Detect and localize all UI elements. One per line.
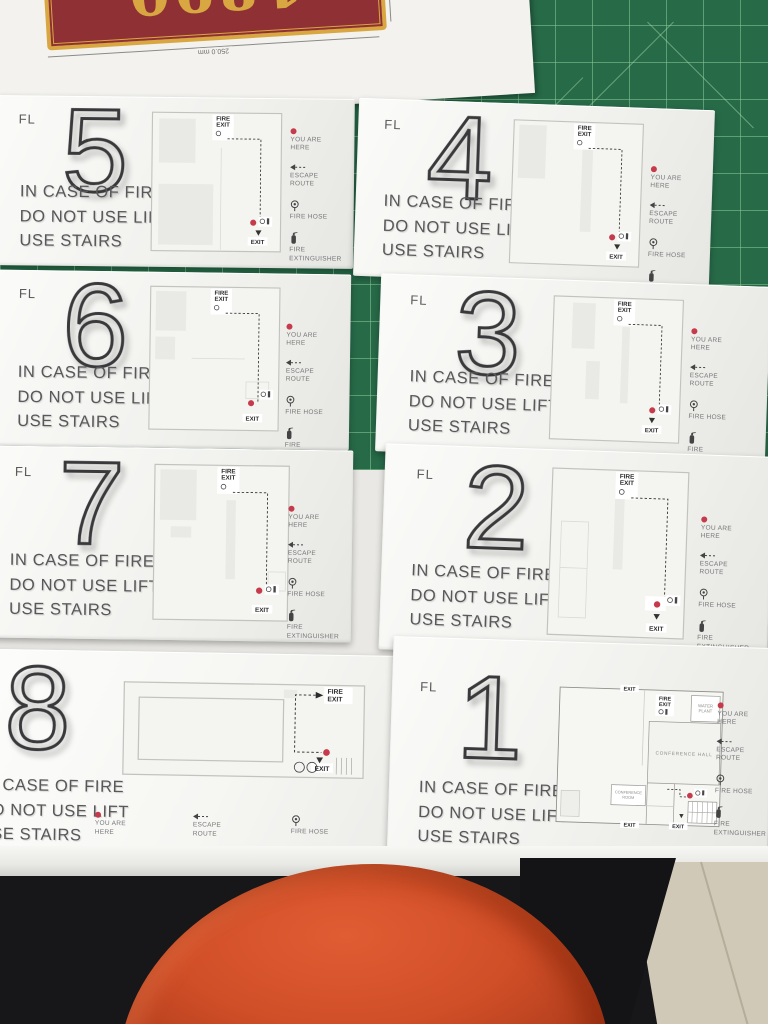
- plan-legend: YOU ARE HERE ESCAPE ROUTE FIRE HOSE FIRE…: [687, 328, 748, 465]
- plaque-number: 1890: [123, 0, 304, 29]
- escape-route-icon: [193, 813, 210, 819]
- plan-legend: YOU ARE HERE ESCAPE ROUTE FIRE HOSE FIRE…: [287, 506, 345, 642]
- exit-label: EXIT: [251, 239, 265, 246]
- exit-label: EXIT: [623, 687, 636, 693]
- you-are-here-icon: [691, 328, 697, 334]
- svg-text:CONFERENCE: CONFERENCE: [615, 790, 643, 795]
- floor-label: FL: [416, 466, 434, 482]
- side-room: [560, 790, 579, 816]
- height-dimension: 100.0 mm: [385, 0, 423, 22]
- floor-label: FL: [384, 117, 402, 133]
- floor-number: 8: [4, 649, 72, 768]
- escape-route-icon: [690, 364, 707, 371]
- floor-sign-8: FL 8 IN CASE OF FIRE DO NOT USE LIFT USE…: [0, 648, 396, 872]
- photo-scene: 1890 250.0 mm 100.0 mm FL 5 IN CASE OF F…: [0, 0, 768, 1024]
- fire-extinguisher-icon: [289, 232, 298, 244]
- fire-hose-icon: [287, 577, 297, 588]
- floor-sign-6: FL 6 IN CASE OF FIRE DO NOT USE LIFT USE…: [0, 270, 351, 451]
- fire-extinguisher-icon: [687, 432, 696, 444]
- exit-label: EXIT: [649, 626, 664, 633]
- fire-extinguisher-icon: [626, 233, 628, 239]
- fire-hose-icon: [290, 200, 300, 211]
- svg-text:EXIT: EXIT: [327, 696, 343, 703]
- fire-hose-icon: [698, 588, 708, 599]
- svg-text:ROOM: ROOM: [622, 796, 634, 800]
- you-are-here-icon: [701, 516, 707, 522]
- svg-text:EXIT: EXIT: [659, 702, 672, 708]
- fire-extinguisher-icon: [647, 270, 656, 282]
- fire-hose-icon: [285, 395, 295, 406]
- floor-label: FL: [19, 111, 36, 126]
- fire-extinguisher-icon: [697, 620, 706, 632]
- fire-extinguisher-icon: [285, 428, 294, 440]
- floor-plan: FIRE EXIT EXIT: [118, 673, 372, 785]
- floor-plan: FIRE EXIT EXIT: [147, 105, 301, 261]
- plan-legend: YOU ARE HERE ESCAPE ROUTE FIRE HOSE FIRE…: [646, 166, 707, 288]
- floor-plan: EXIT FIRE EXIT WATER PLANT CONFERENCE HA…: [545, 647, 738, 867]
- fire-warning-text: IN CASE OF FIRE DO NOT USE LIFT USE STAI…: [409, 558, 561, 637]
- fire-extinguisher-icon: [665, 709, 667, 715]
- fire-hose-icon: [291, 815, 301, 826]
- escape-route-icon: [288, 542, 305, 548]
- you-are-here-icon: [286, 324, 292, 330]
- exit-label: EXIT: [645, 427, 659, 434]
- fire-extinguisher-icon: [666, 406, 668, 412]
- fire-warning-text: IN CASE OF FIRE DO NOT USE LIFT USE STAI…: [407, 364, 559, 443]
- exit-label: EXIT: [255, 607, 269, 614]
- fire-hose-icon: [648, 238, 658, 249]
- svg-text:EXIT: EXIT: [221, 475, 235, 482]
- you-are-here-icon: [291, 128, 297, 134]
- exit-label: EXIT: [609, 254, 623, 261]
- floor-sign-5: FL 5 IN CASE OF FIRE DO NOT USE LIFT USE…: [0, 95, 355, 269]
- exit-label: EXIT: [672, 824, 685, 830]
- svg-text:EXIT: EXIT: [618, 307, 632, 314]
- stairs: [688, 801, 717, 823]
- svg-text:EXIT: EXIT: [620, 480, 635, 487]
- floor-label: FL: [15, 464, 32, 479]
- fire-hose-icon: [715, 774, 725, 785]
- escape-route-icon: [650, 202, 667, 209]
- floor-number: 2: [461, 448, 531, 568]
- exit-label: EXIT: [246, 416, 260, 423]
- fire-extinguisher-icon: [273, 586, 275, 592]
- fire-exit-label: FIRE: [327, 689, 343, 696]
- you-are-here-icon: [651, 166, 657, 172]
- floor-plan: FIRE EXIT EXIT: [543, 459, 709, 648]
- plan-legend: YOU ARE HERE ESCAPE ROUTE FIRE HOSE FIRE…: [697, 516, 758, 653]
- plan-legend: YOU ARE HERE ESCAPE ROUTE FIRE HOSE FIRE…: [95, 812, 396, 849]
- plan-legend: YOU ARE HERE ESCAPE ROUTE FIRE HOSE FIRE…: [285, 324, 343, 451]
- fire-extinguisher-icon: [702, 790, 704, 795]
- fire-extinguisher-icon: [675, 597, 678, 603]
- svg-text:PLANT: PLANT: [698, 708, 712, 713]
- svg-text:EXIT: EXIT: [216, 122, 230, 129]
- exit-label: EXIT: [623, 823, 636, 829]
- floor-sign-1: FL 1 IN CASE OF FIRE DO NOT USE LIFT USE…: [387, 636, 768, 876]
- floor-label: FL: [420, 679, 438, 695]
- escape-route-icon: [286, 359, 303, 365]
- floor-plan: FIRE EXIT EXIT: [505, 111, 662, 276]
- floor-label: FL: [19, 286, 36, 301]
- floor-number: 1: [455, 658, 524, 778]
- svg-text:EXIT: EXIT: [578, 131, 592, 138]
- floor-sign-7: FL 7 IN CASE OF FIRE DO NOT USE LIFT USE…: [0, 445, 353, 642]
- you-are-here-icon: [95, 812, 101, 818]
- floor-sign-4: FL 4 IN CASE OF FIRE DO NOT USE LIFT USE…: [353, 98, 715, 288]
- floor-plan: FIRE EXIT EXIT: [545, 287, 702, 452]
- fire-hose-icon: [689, 400, 699, 411]
- plan-legend: YOU ARE HERE ESCAPE ROUTE FIRE HOSE FIRE…: [289, 128, 346, 264]
- escape-route-icon: [290, 164, 307, 170]
- fire-extinguisher-icon: [267, 218, 269, 224]
- fire-extinguisher-icon: [287, 610, 296, 622]
- svg-text:EXIT: EXIT: [215, 296, 229, 303]
- floor-plan: FIRE EXIT EXIT: [145, 278, 299, 440]
- escape-route-icon: [716, 738, 733, 745]
- floor-label: FL: [410, 292, 428, 308]
- fire-extinguisher-icon: [714, 806, 723, 818]
- you-are-here-icon: [288, 506, 294, 512]
- plan-legend: YOU ARE HERE ESCAPE ROUTE FIRE HOSE FIRE…: [714, 702, 768, 839]
- escape-route-icon: [700, 552, 717, 559]
- floor-sign-2: FL 2 IN CASE OF FIRE DO NOT USE LIFT USE…: [379, 443, 768, 662]
- fire-warning-text: IN CASE OF FIRE DO NOT USE LIFT USE STAI…: [9, 548, 160, 624]
- floor-number: 7: [58, 445, 125, 563]
- fire-extinguisher-icon: [268, 391, 270, 397]
- floor-plan: FIRE EXIT EXIT: [149, 456, 309, 630]
- floor-sign-3: FL 3 IN CASE OF FIRE DO NOT USE LIFT USE…: [375, 273, 768, 465]
- you-are-here-icon: [718, 702, 724, 708]
